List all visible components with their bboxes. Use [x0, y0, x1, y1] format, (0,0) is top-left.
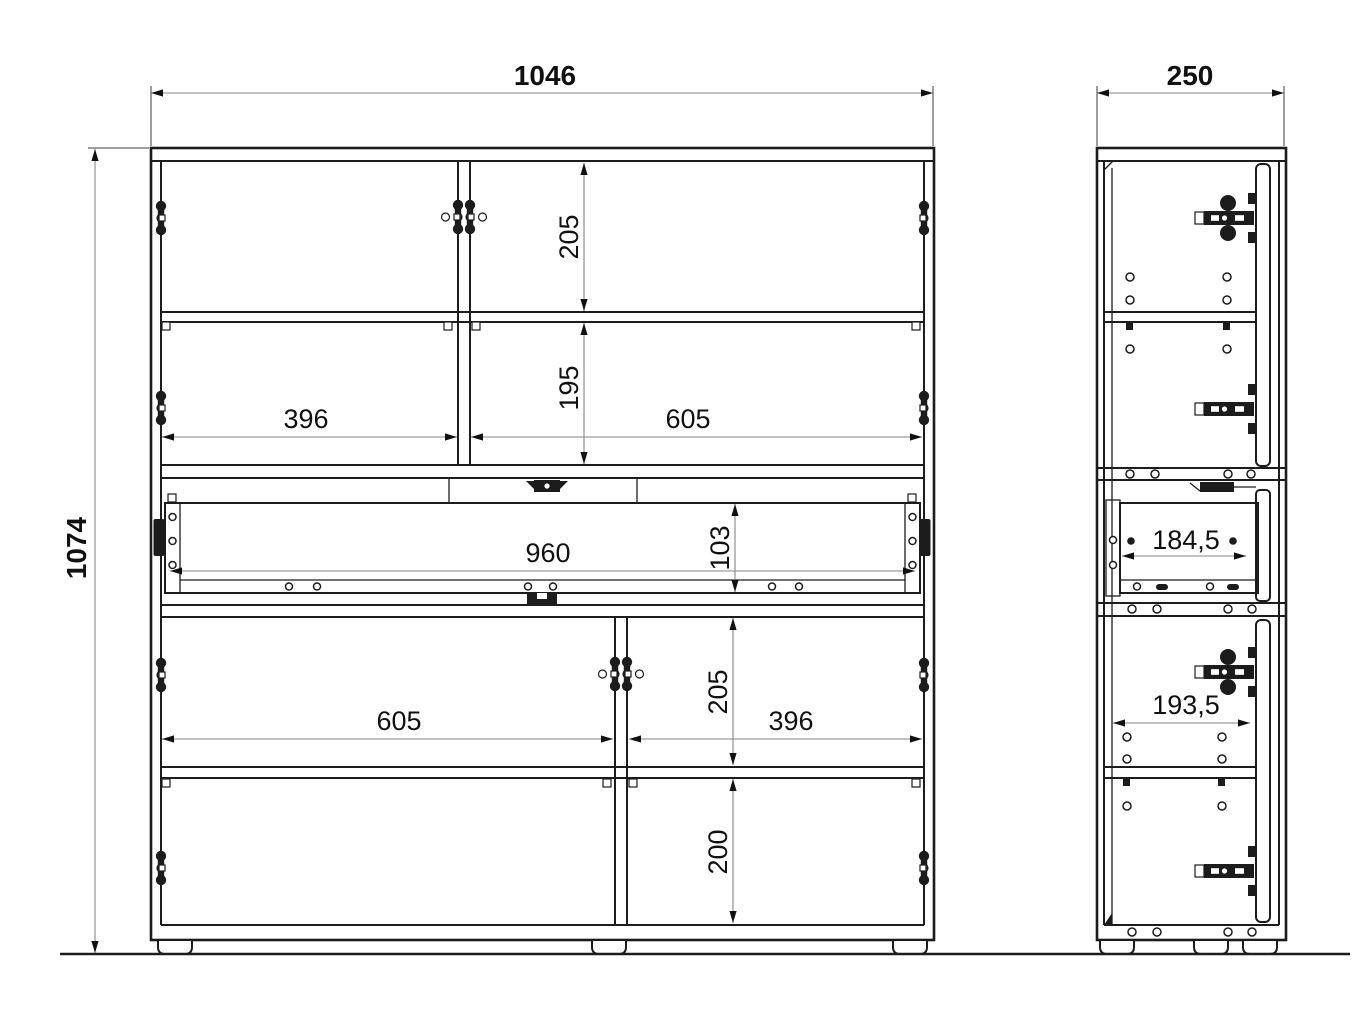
dim-lower-left-width: 605	[162, 706, 613, 739]
dim-label-door-inner-depth: 193,5	[1152, 690, 1220, 720]
side-feet	[1100, 940, 1277, 954]
drawer-slide-icon	[920, 519, 931, 556]
foot	[158, 940, 192, 954]
hinge-icon	[156, 391, 166, 425]
dim-bottom-shelf-height: 200	[703, 779, 733, 923]
dim-label-drawer-inner-depth: 184,5	[1152, 525, 1220, 555]
front-feet	[158, 940, 927, 954]
technical-drawing-canvas: 1046 1074 205 195 396 605 960 10	[0, 0, 1362, 1021]
screw-holes	[1123, 273, 1256, 936]
dimensions-front: 1046 1074 205 195 396 605 960 10	[61, 60, 933, 953]
hinge-icon	[599, 657, 621, 691]
hinge-icon	[622, 657, 644, 691]
drawer-catch-icon	[527, 593, 557, 605]
dim-label-lower-door-height: 205	[703, 669, 733, 714]
dim-label-overall-height: 1074	[61, 516, 92, 579]
dim-drawer-inner-depth: 184,5	[1122, 525, 1246, 556]
hinge-icon	[465, 200, 487, 234]
dim-label-upper-shelf-height: 195	[554, 365, 584, 410]
hinge-icon	[919, 658, 929, 692]
hinge-icon	[442, 200, 464, 234]
dim-label-overall-width: 1046	[514, 60, 576, 91]
dim-label-top-door-height: 205	[554, 214, 584, 259]
foot	[893, 940, 927, 954]
hinge-icon	[156, 201, 166, 235]
drawer-slide-icon	[154, 519, 165, 556]
dim-door-inner-depth: 193,5	[1113, 690, 1250, 723]
dim-top-door-height: 205	[554, 163, 584, 311]
hinge-icon	[919, 851, 929, 885]
drawer-catch-icon	[526, 480, 568, 492]
foot	[592, 940, 626, 954]
dim-label-upper-right-width: 605	[665, 404, 710, 434]
dim-overall-depth: 250	[1097, 60, 1284, 146]
hinge-icon	[156, 851, 166, 885]
dim-label-lower-right-width: 396	[768, 706, 813, 736]
drawer-catch-icon	[1190, 482, 1256, 492]
dim-label-drawer-width: 960	[525, 538, 570, 568]
hinge-icon	[919, 391, 929, 425]
dim-overall-width: 1046	[151, 60, 933, 146]
foot	[1243, 940, 1277, 954]
hinge-icon	[919, 201, 929, 235]
dim-label-overall-depth: 250	[1167, 60, 1214, 91]
dim-overall-height: 1074	[61, 148, 149, 953]
dim-label-lower-left-width: 605	[376, 706, 421, 736]
dim-label-upper-left-width: 396	[283, 404, 328, 434]
hinge-icon	[1195, 846, 1256, 896]
foot	[1100, 940, 1134, 954]
dim-upper-right-width: 605	[471, 404, 922, 437]
dim-label-drawer-front-height: 103	[705, 525, 735, 570]
hinge-icon	[1195, 193, 1256, 243]
hinge-icon	[1195, 384, 1256, 434]
dim-lower-right-width: 396	[629, 706, 922, 739]
hinge-icon	[156, 658, 166, 692]
dim-lower-door-height: 205	[703, 618, 733, 765]
dim-upper-left-width: 396	[162, 404, 457, 437]
dim-drawer-front-height: 103	[705, 504, 735, 592]
dim-label-bottom-shelf-height: 200	[703, 829, 733, 874]
dim-drawer-width: 960	[170, 538, 915, 571]
dim-upper-shelf-height: 195	[554, 323, 584, 464]
foot	[1194, 940, 1228, 954]
